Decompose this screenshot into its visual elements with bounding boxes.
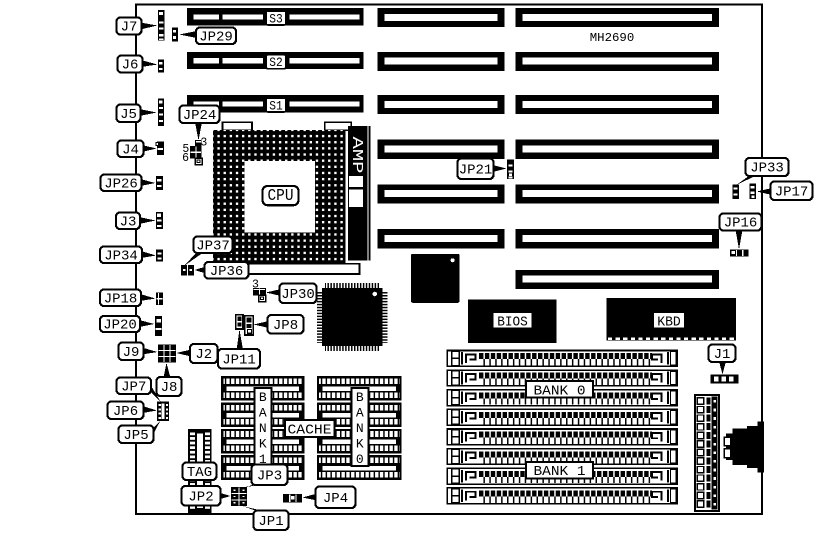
svg-text:MH2690: MH2690: [590, 32, 635, 45]
svg-text:JP17: JP17: [775, 184, 809, 200]
svg-text:JP7: JP7: [121, 379, 146, 395]
svg-text:JP33: JP33: [750, 161, 784, 177]
svg-text:J9: J9: [123, 345, 140, 361]
svg-text:J4: J4: [122, 142, 139, 158]
svg-text:JP34: JP34: [104, 248, 138, 264]
svg-text:K: K: [259, 436, 267, 451]
svg-text:BIOS: BIOS: [497, 315, 528, 331]
svg-text:JP37: JP37: [196, 238, 230, 254]
svg-text:J8: J8: [161, 380, 178, 396]
svg-text:S2: S2: [269, 56, 283, 70]
svg-text:AMP: AMP: [348, 137, 365, 174]
svg-text:JP24: JP24: [183, 108, 217, 124]
svg-text:S3: S3: [269, 12, 283, 26]
svg-text:0: 0: [356, 452, 364, 467]
svg-text:J6: J6: [122, 58, 139, 74]
svg-text:B: B: [356, 390, 364, 405]
svg-text:JP8: JP8: [273, 318, 298, 334]
svg-text:B: B: [259, 390, 267, 405]
svg-text:6: 6: [182, 152, 189, 165]
svg-text:BANK 0: BANK 0: [534, 383, 586, 399]
svg-text:N: N: [259, 421, 267, 436]
svg-text:JP36: JP36: [210, 264, 244, 280]
svg-text:S1: S1: [269, 99, 283, 113]
svg-text:JP21: JP21: [459, 162, 493, 178]
svg-text:JP3: JP3: [257, 468, 282, 484]
svg-text:CPU: CPU: [268, 187, 294, 206]
svg-text:3: 3: [252, 279, 259, 292]
svg-text:JP18: JP18: [104, 291, 138, 307]
svg-text:JP11: JP11: [222, 352, 256, 368]
svg-text:J3: J3: [120, 214, 137, 230]
svg-text:JP2: JP2: [188, 489, 213, 505]
svg-text:JP4: JP4: [323, 491, 348, 507]
svg-text:JP30: JP30: [281, 287, 315, 303]
svg-text:J2: J2: [195, 347, 212, 363]
svg-text:KBD: KBD: [657, 315, 681, 331]
svg-text:JP1: JP1: [258, 514, 283, 530]
svg-text:TAG: TAG: [187, 465, 212, 481]
svg-text:CACHE: CACHE: [288, 422, 332, 438]
svg-text:A: A: [356, 405, 364, 420]
svg-text:JP16: JP16: [724, 216, 758, 232]
svg-text:J1: J1: [714, 347, 731, 363]
svg-text:J5: J5: [120, 107, 137, 123]
svg-text:N: N: [356, 421, 364, 436]
svg-text:JP6: JP6: [113, 404, 138, 420]
svg-text:A: A: [259, 405, 267, 420]
svg-text:JP29: JP29: [199, 29, 233, 45]
svg-text:JP26: JP26: [104, 176, 138, 192]
svg-text:3: 3: [200, 137, 207, 150]
svg-text:BANK 1: BANK 1: [534, 464, 586, 480]
svg-text:K: K: [356, 436, 364, 451]
svg-text:J7: J7: [121, 20, 138, 36]
svg-text:JP20: JP20: [103, 318, 137, 334]
svg-text:JP5: JP5: [123, 428, 148, 444]
